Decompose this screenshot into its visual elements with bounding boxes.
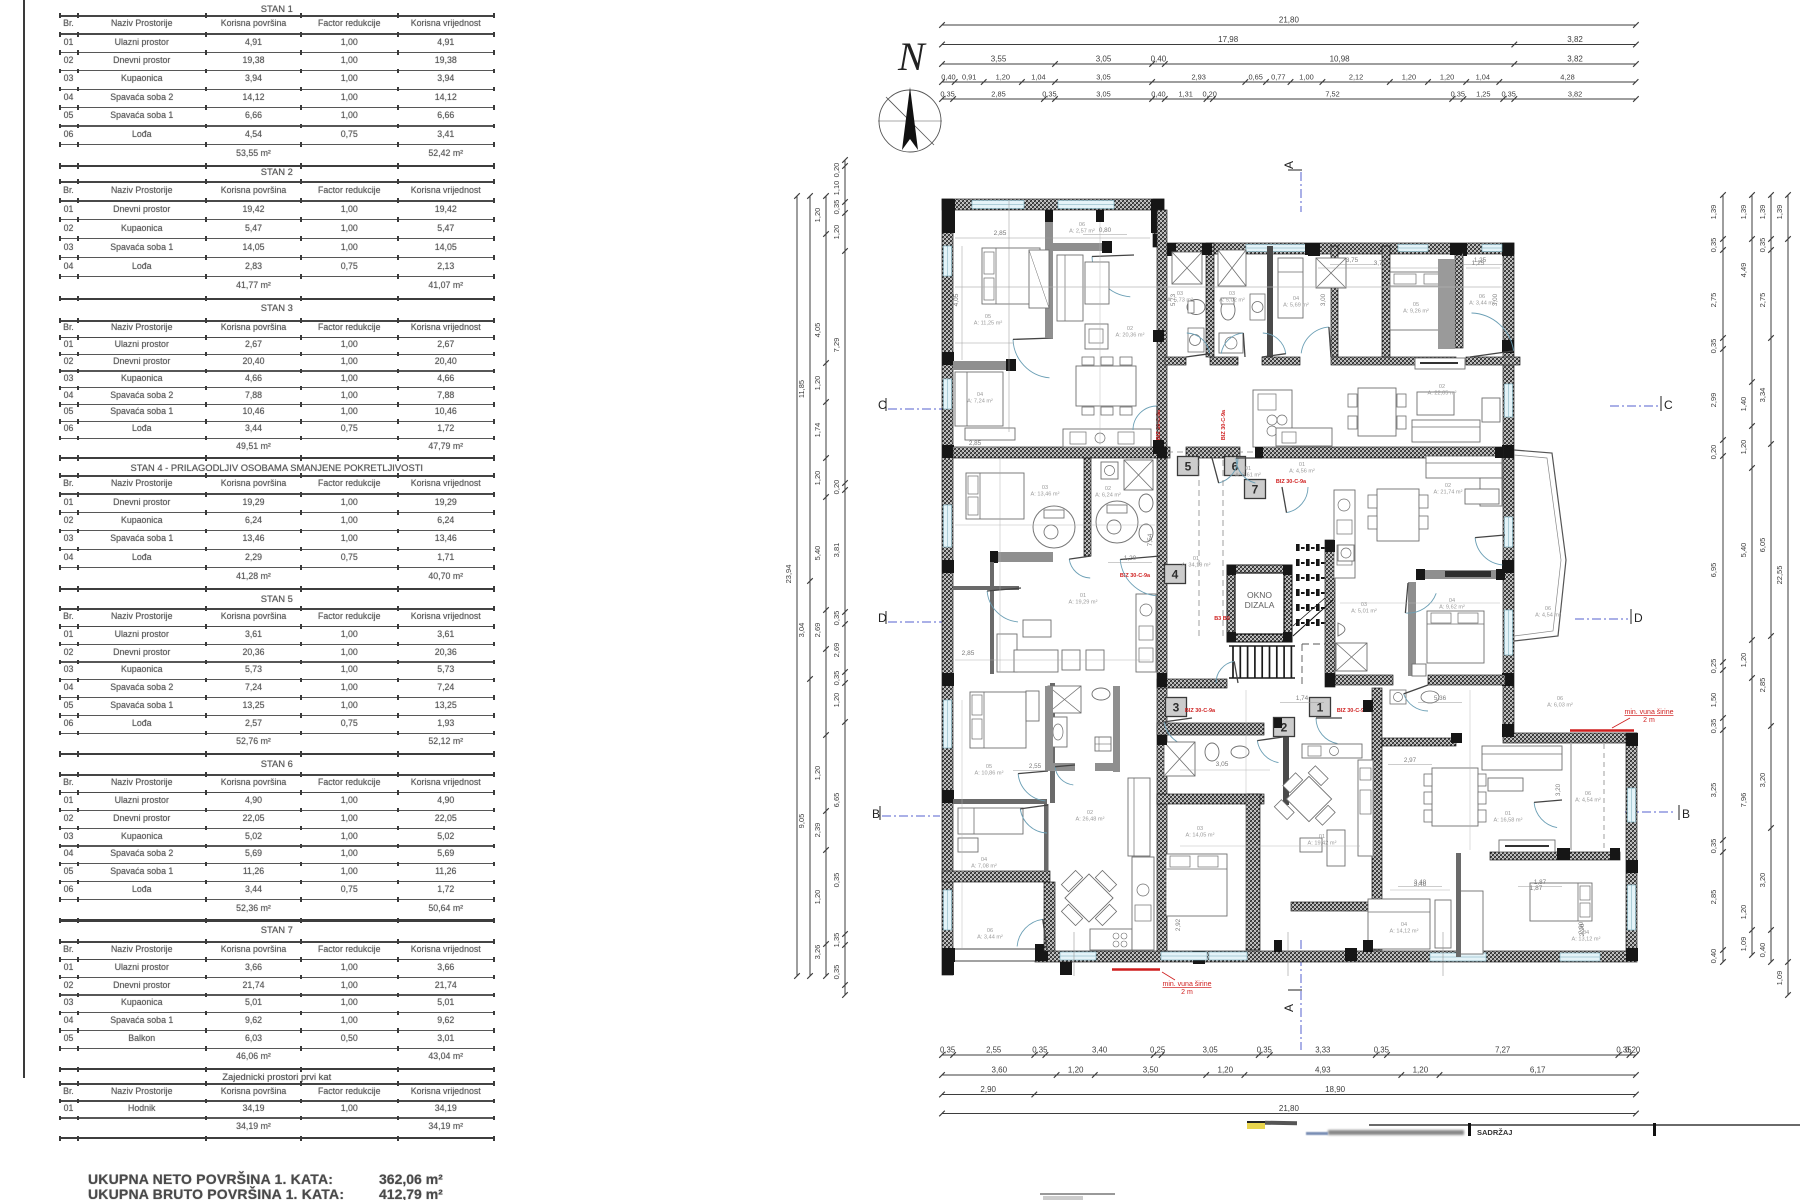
svg-text:4,05: 4,05 [953, 293, 960, 306]
svg-text:01: 01 [1319, 834, 1325, 840]
svg-text:06: 06 [1479, 294, 1485, 300]
svg-text:A: 13,46 m²: A: 13,46 m² [1031, 492, 1060, 498]
svg-text:A: 21,74 m²: A: 21,74 m² [1434, 490, 1463, 496]
svg-text:1,39: 1,39 [1709, 205, 1718, 220]
svg-text:1,20: 1,20 [1739, 905, 1748, 920]
svg-text:02: 02 [1445, 483, 1451, 489]
svg-text:1,87: 1,87 [1530, 885, 1543, 892]
svg-text:6,95: 6,95 [1709, 563, 1718, 578]
svg-text:4,28: 4,28 [1560, 73, 1574, 82]
svg-text:0,20: 0,20 [1203, 90, 1217, 99]
svg-text:03: 03 [1197, 826, 1203, 832]
svg-text:6,17: 6,17 [1530, 1066, 1546, 1075]
svg-text:2,12: 2,12 [1349, 73, 1363, 82]
svg-text:1,20: 1,20 [1440, 73, 1454, 82]
svg-text:0,77: 0,77 [1271, 73, 1285, 82]
svg-text:0,91: 0,91 [962, 73, 976, 82]
svg-text:2,92: 2,92 [1175, 918, 1182, 931]
svg-text:3,05: 3,05 [1096, 90, 1110, 99]
svg-text:05: 05 [1413, 302, 1419, 308]
svg-text:4: 4 [1172, 568, 1179, 582]
svg-text:2,69: 2,69 [813, 623, 822, 638]
svg-text:1,20: 1,20 [813, 766, 822, 781]
svg-text:A: 5,01 m²: A: 5,01 m² [1351, 609, 1377, 615]
svg-text:03: 03 [1042, 485, 1048, 491]
svg-text:0,25: 0,25 [1709, 659, 1718, 674]
svg-text:0,35: 0,35 [1257, 1046, 1273, 1055]
svg-text:min. vuna širine: min. vuna širine [1162, 981, 1211, 988]
svg-text:01: 01 [1193, 556, 1199, 562]
svg-text:3,20: 3,20 [1758, 873, 1767, 888]
svg-text:3,04: 3,04 [797, 623, 806, 638]
svg-text:A: 10,86 m²: A: 10,86 m² [975, 771, 1004, 777]
svg-text:0,35: 0,35 [832, 965, 841, 980]
svg-text:2,99: 2,99 [1709, 393, 1718, 408]
svg-text:1,10: 1,10 [832, 181, 841, 196]
svg-text:21,80: 21,80 [1279, 1104, 1300, 1113]
svg-text:9,05: 9,05 [797, 814, 806, 829]
svg-text:2,85: 2,85 [994, 230, 1007, 237]
svg-text:5: 5 [1185, 460, 1192, 474]
svg-text:2,85: 2,85 [969, 440, 982, 447]
svg-text:03: 03 [1229, 291, 1235, 297]
svg-text:0,35: 0,35 [1374, 1046, 1390, 1055]
svg-text:A: 9,62 m²: A: 9,62 m² [1439, 605, 1465, 611]
svg-text:7,96: 7,96 [1739, 793, 1748, 808]
svg-text:1,20: 1,20 [1402, 73, 1416, 82]
svg-text:1,25: 1,25 [1476, 90, 1490, 99]
svg-text:A: 4,56 m²: A: 4,56 m² [1289, 469, 1315, 475]
svg-text:1,09: 1,09 [1775, 971, 1784, 986]
svg-text:06: 06 [1545, 606, 1551, 612]
svg-text:1,87: 1,87 [1534, 879, 1547, 886]
svg-text:1,20: 1,20 [1413, 1066, 1429, 1075]
svg-text:2,90: 2,90 [1578, 921, 1585, 934]
svg-text:A: 7,24 m²: A: 7,24 m² [967, 399, 993, 405]
svg-text:BIZ 30-C-9a: BIZ 30-C-9a [1221, 409, 1227, 440]
svg-text:0,20: 0,20 [1625, 1046, 1641, 1055]
svg-text:02: 02 [1439, 384, 1445, 390]
svg-text:3: 3 [1173, 701, 1180, 715]
svg-text:05: 05 [985, 314, 991, 320]
svg-text:A: 14,12 m²: A: 14,12 m² [1390, 929, 1419, 935]
svg-text:7: 7 [1252, 483, 1259, 497]
svg-text:0,35: 0,35 [1451, 90, 1465, 99]
svg-text:1,20: 1,20 [1739, 653, 1748, 668]
svg-text:A: 7,08 m²: A: 7,08 m² [971, 864, 997, 870]
svg-text:3,40: 3,40 [1092, 1046, 1108, 1055]
svg-text:0,35: 0,35 [832, 611, 841, 626]
svg-text:7,29: 7,29 [832, 338, 841, 353]
svg-text:3,05: 3,05 [1203, 1046, 1219, 1055]
svg-text:3,50: 3,50 [1143, 1066, 1159, 1075]
svg-text:3,81: 3,81 [832, 543, 841, 558]
svg-text:0,35: 0,35 [1758, 238, 1767, 253]
svg-text:3,05: 3,05 [1216, 761, 1229, 768]
svg-text:1,20: 1,20 [813, 208, 822, 223]
svg-text:1,04: 1,04 [1476, 73, 1490, 82]
svg-text:A: 16,58 m²: A: 16,58 m² [1494, 818, 1523, 824]
svg-text:2,55: 2,55 [986, 1046, 1002, 1055]
svg-text:2 m: 2 m [1181, 989, 1193, 996]
svg-text:1,74: 1,74 [1296, 695, 1309, 702]
svg-text:04: 04 [1401, 922, 1407, 928]
svg-text:B: B [1682, 807, 1690, 821]
svg-text:1,31: 1,31 [1179, 90, 1193, 99]
svg-text:0,35: 0,35 [832, 873, 841, 888]
svg-text:A: 5,69 m²: A: 5,69 m² [1283, 303, 1309, 309]
svg-text:2 m: 2 m [1643, 717, 1655, 724]
svg-text:10,98: 10,98 [1330, 55, 1351, 64]
svg-text:0,35: 0,35 [1709, 839, 1718, 854]
svg-text:A: 34,19 m²: A: 34,19 m² [1182, 563, 1211, 569]
svg-text:02: 02 [1127, 326, 1133, 332]
svg-text:1,20: 1,20 [1739, 440, 1748, 455]
svg-text:3,00: 3,00 [1492, 293, 1499, 306]
svg-text:3,25: 3,25 [1709, 783, 1718, 798]
svg-text:2,75: 2,75 [1758, 293, 1767, 308]
svg-text:3,82: 3,82 [1568, 90, 1582, 99]
svg-text:0,35: 0,35 [940, 90, 954, 99]
svg-text:1,20: 1,20 [832, 693, 841, 708]
svg-text:3,26: 3,26 [813, 945, 822, 960]
svg-text:1,09: 1,09 [1739, 937, 1748, 952]
svg-text:A: 19,42 m²: A: 19,42 m² [1308, 841, 1337, 847]
svg-text:5,40: 5,40 [813, 546, 822, 561]
svg-text:BIZ 30-C-9a: BIZ 30-C-9a [1276, 479, 1307, 485]
svg-text:3,33: 3,33 [1315, 1046, 1330, 1055]
svg-text:A: 26,48 m²: A: 26,48 m² [1076, 817, 1105, 823]
svg-text:7,52: 7,52 [1325, 90, 1339, 99]
svg-text:0,35: 0,35 [832, 671, 841, 686]
svg-text:1,04: 1,04 [1031, 73, 1045, 82]
svg-text:5,73: 5,73 [1170, 293, 1177, 306]
svg-text:DIZALA: DIZALA [1245, 600, 1275, 610]
svg-text:4,05: 4,05 [813, 323, 822, 338]
svg-text:A: 19,29 m²: A: 19,29 m² [1069, 600, 1098, 606]
svg-text:A: 2,57 m²: A: 2,57 m² [1069, 229, 1095, 235]
svg-text:18,90: 18,90 [1325, 1085, 1346, 1094]
svg-text:1,39: 1,39 [1775, 205, 1784, 220]
svg-text:17,98: 17,98 [1218, 35, 1239, 44]
svg-text:0,40: 0,40 [1151, 55, 1167, 64]
svg-text:A: 13,12 m²: A: 13,12 m² [1572, 937, 1601, 943]
svg-text:0,20: 0,20 [832, 163, 841, 178]
svg-text:1,20: 1,20 [813, 471, 822, 486]
svg-text:04: 04 [981, 857, 987, 863]
svg-text:1,20: 1,20 [996, 73, 1010, 82]
svg-text:0,35: 0,35 [940, 1046, 956, 1055]
svg-text:3,60: 3,60 [992, 1066, 1008, 1075]
svg-text:2,69: 2,69 [832, 643, 841, 658]
svg-text:2,85: 2,85 [991, 90, 1005, 99]
svg-text:1,39: 1,39 [1758, 205, 1767, 220]
svg-text:5,40: 5,40 [1739, 543, 1748, 558]
svg-text:3,75: 3,75 [1374, 260, 1387, 267]
svg-text:0,35: 0,35 [1709, 339, 1718, 354]
svg-text:3,20: 3,20 [1555, 783, 1562, 796]
svg-text:02: 02 [1105, 486, 1111, 492]
svg-text:0,35: 0,35 [1709, 719, 1718, 734]
svg-text:06: 06 [1585, 791, 1591, 797]
svg-text:2,85: 2,85 [1758, 678, 1767, 693]
svg-text:B: B [872, 807, 880, 821]
svg-text:1,35: 1,35 [832, 933, 841, 948]
svg-text:1,74: 1,74 [813, 423, 822, 438]
svg-text:0,40: 0,40 [941, 73, 955, 82]
svg-text:1,25: 1,25 [1474, 257, 1487, 264]
svg-text:03: 03 [1177, 291, 1183, 297]
svg-text:2,39: 2,39 [813, 823, 822, 838]
svg-text:4,93: 4,93 [1315, 1066, 1331, 1075]
svg-text:01: 01 [1080, 593, 1086, 599]
svg-text:0,35: 0,35 [1709, 238, 1718, 253]
svg-text:5,36: 5,36 [1434, 695, 1447, 702]
svg-text:C: C [1664, 398, 1673, 412]
svg-text:2,85: 2,85 [962, 650, 975, 657]
svg-text:3,00: 3,00 [1320, 293, 1327, 306]
svg-text:06: 06 [1079, 222, 1085, 228]
svg-text:06: 06 [987, 928, 993, 934]
svg-text:2,55: 2,55 [1029, 763, 1042, 770]
svg-text:22,55: 22,55 [1775, 566, 1784, 585]
svg-text:0,35: 0,35 [1032, 1046, 1048, 1055]
svg-text:1,50: 1,50 [1709, 693, 1718, 708]
svg-text:A: A [1282, 1004, 1296, 1012]
svg-text:1,20: 1,20 [813, 376, 822, 391]
svg-text:2,93: 2,93 [1192, 73, 1206, 82]
svg-text:3,34: 3,34 [1758, 388, 1767, 403]
svg-text:3,82: 3,82 [1567, 55, 1583, 64]
svg-text:D: D [1634, 611, 1643, 625]
svg-text:OKNO: OKNO [1247, 590, 1272, 600]
svg-text:06: 06 [1557, 696, 1563, 702]
svg-text:0,80: 0,80 [1099, 227, 1112, 234]
svg-text:1,00: 1,00 [1299, 73, 1313, 82]
svg-text:3,20: 3,20 [1758, 773, 1767, 788]
svg-text:0,20: 0,20 [1709, 445, 1718, 460]
svg-text:6,65: 6,65 [832, 793, 841, 808]
svg-text:11,85: 11,85 [797, 380, 806, 398]
svg-text:A: A [1282, 161, 1296, 169]
svg-text:04: 04 [1293, 296, 1299, 302]
svg-text:A: 5,02 m²: A: 5,02 m² [1219, 298, 1245, 304]
svg-text:1,20: 1,20 [813, 890, 822, 905]
svg-text:A: 4,54 m²: A: 4,54 m² [1575, 798, 1601, 804]
svg-text:min. vuna širine: min. vuna širine [1624, 709, 1673, 716]
svg-text:0,35: 0,35 [1502, 90, 1516, 99]
svg-text:1,20: 1,20 [1218, 1066, 1234, 1075]
svg-text:01: 01 [1299, 462, 1305, 468]
svg-text:A: 20,36 m²: A: 20,36 m² [1116, 333, 1145, 339]
svg-text:1,39: 1,39 [1739, 205, 1748, 220]
svg-text:0,35: 0,35 [832, 200, 841, 215]
svg-text:A: 6,03 m²: A: 6,03 m² [1547, 703, 1573, 709]
svg-text:3,05: 3,05 [1096, 55, 1112, 64]
svg-text:04: 04 [977, 392, 983, 398]
svg-text:05: 05 [986, 764, 992, 770]
svg-text:0,65: 0,65 [1249, 73, 1263, 82]
svg-text:3,55: 3,55 [991, 55, 1007, 64]
svg-text:A: 22,05 m²: A: 22,05 m² [1428, 391, 1457, 397]
svg-text:A: 14,05 m²: A: 14,05 m² [1186, 833, 1215, 839]
svg-text:1,20: 1,20 [1068, 1066, 1084, 1075]
svg-text:1,20: 1,20 [1124, 555, 1137, 562]
svg-text:N: N [897, 34, 927, 79]
svg-text:2,75: 2,75 [1709, 293, 1718, 308]
svg-text:0,35: 0,35 [1042, 90, 1056, 99]
svg-text:2,85: 2,85 [1709, 890, 1718, 905]
svg-text:A: 4,54 m²: A: 4,54 m² [1535, 613, 1561, 619]
svg-text:7,27: 7,27 [1495, 1046, 1510, 1055]
svg-text:01: 01 [1245, 466, 1251, 472]
svg-text:A: 9,26 m²: A: 9,26 m² [1403, 309, 1429, 315]
svg-text:2,97: 2,97 [1404, 757, 1417, 764]
svg-text:4,49: 4,49 [1739, 263, 1748, 278]
svg-text:A: 6,24 m²: A: 6,24 m² [1095, 493, 1121, 499]
svg-text:3,48: 3,48 [1414, 879, 1427, 886]
svg-text:02: 02 [1087, 810, 1093, 816]
svg-text:01: 01 [1505, 811, 1511, 817]
svg-text:BIZ 30-C-9a: BIZ 30-C-9a [1185, 708, 1216, 714]
svg-text:23,94: 23,94 [784, 565, 793, 584]
svg-text:3,82: 3,82 [1567, 35, 1583, 44]
svg-text:A: 11,25 m²: A: 11,25 m² [974, 321, 1003, 327]
svg-text:2,90: 2,90 [980, 1085, 996, 1094]
svg-text:A: 3,61 m²: A: 3,61 m² [1235, 473, 1261, 479]
svg-text:0,40: 0,40 [1151, 90, 1165, 99]
svg-text:0,40: 0,40 [1709, 949, 1718, 964]
svg-text:3,75: 3,75 [1346, 257, 1359, 264]
svg-text:1,20: 1,20 [832, 225, 841, 240]
svg-text:21,80: 21,80 [1279, 16, 1300, 25]
svg-text:0,40: 0,40 [1758, 943, 1767, 958]
svg-text:B3 B0: B3 B0 [1214, 616, 1230, 622]
svg-text:3,05: 3,05 [1096, 73, 1110, 82]
svg-text:1,40: 1,40 [1739, 397, 1748, 412]
svg-text:0,25: 0,25 [1150, 1046, 1166, 1055]
svg-text:7,54: 7,54 [1147, 533, 1154, 546]
svg-text:A: 3,44 m²: A: 3,44 m² [977, 935, 1003, 941]
svg-text:0,20: 0,20 [832, 480, 841, 495]
svg-text:6,05: 6,05 [1758, 538, 1767, 553]
